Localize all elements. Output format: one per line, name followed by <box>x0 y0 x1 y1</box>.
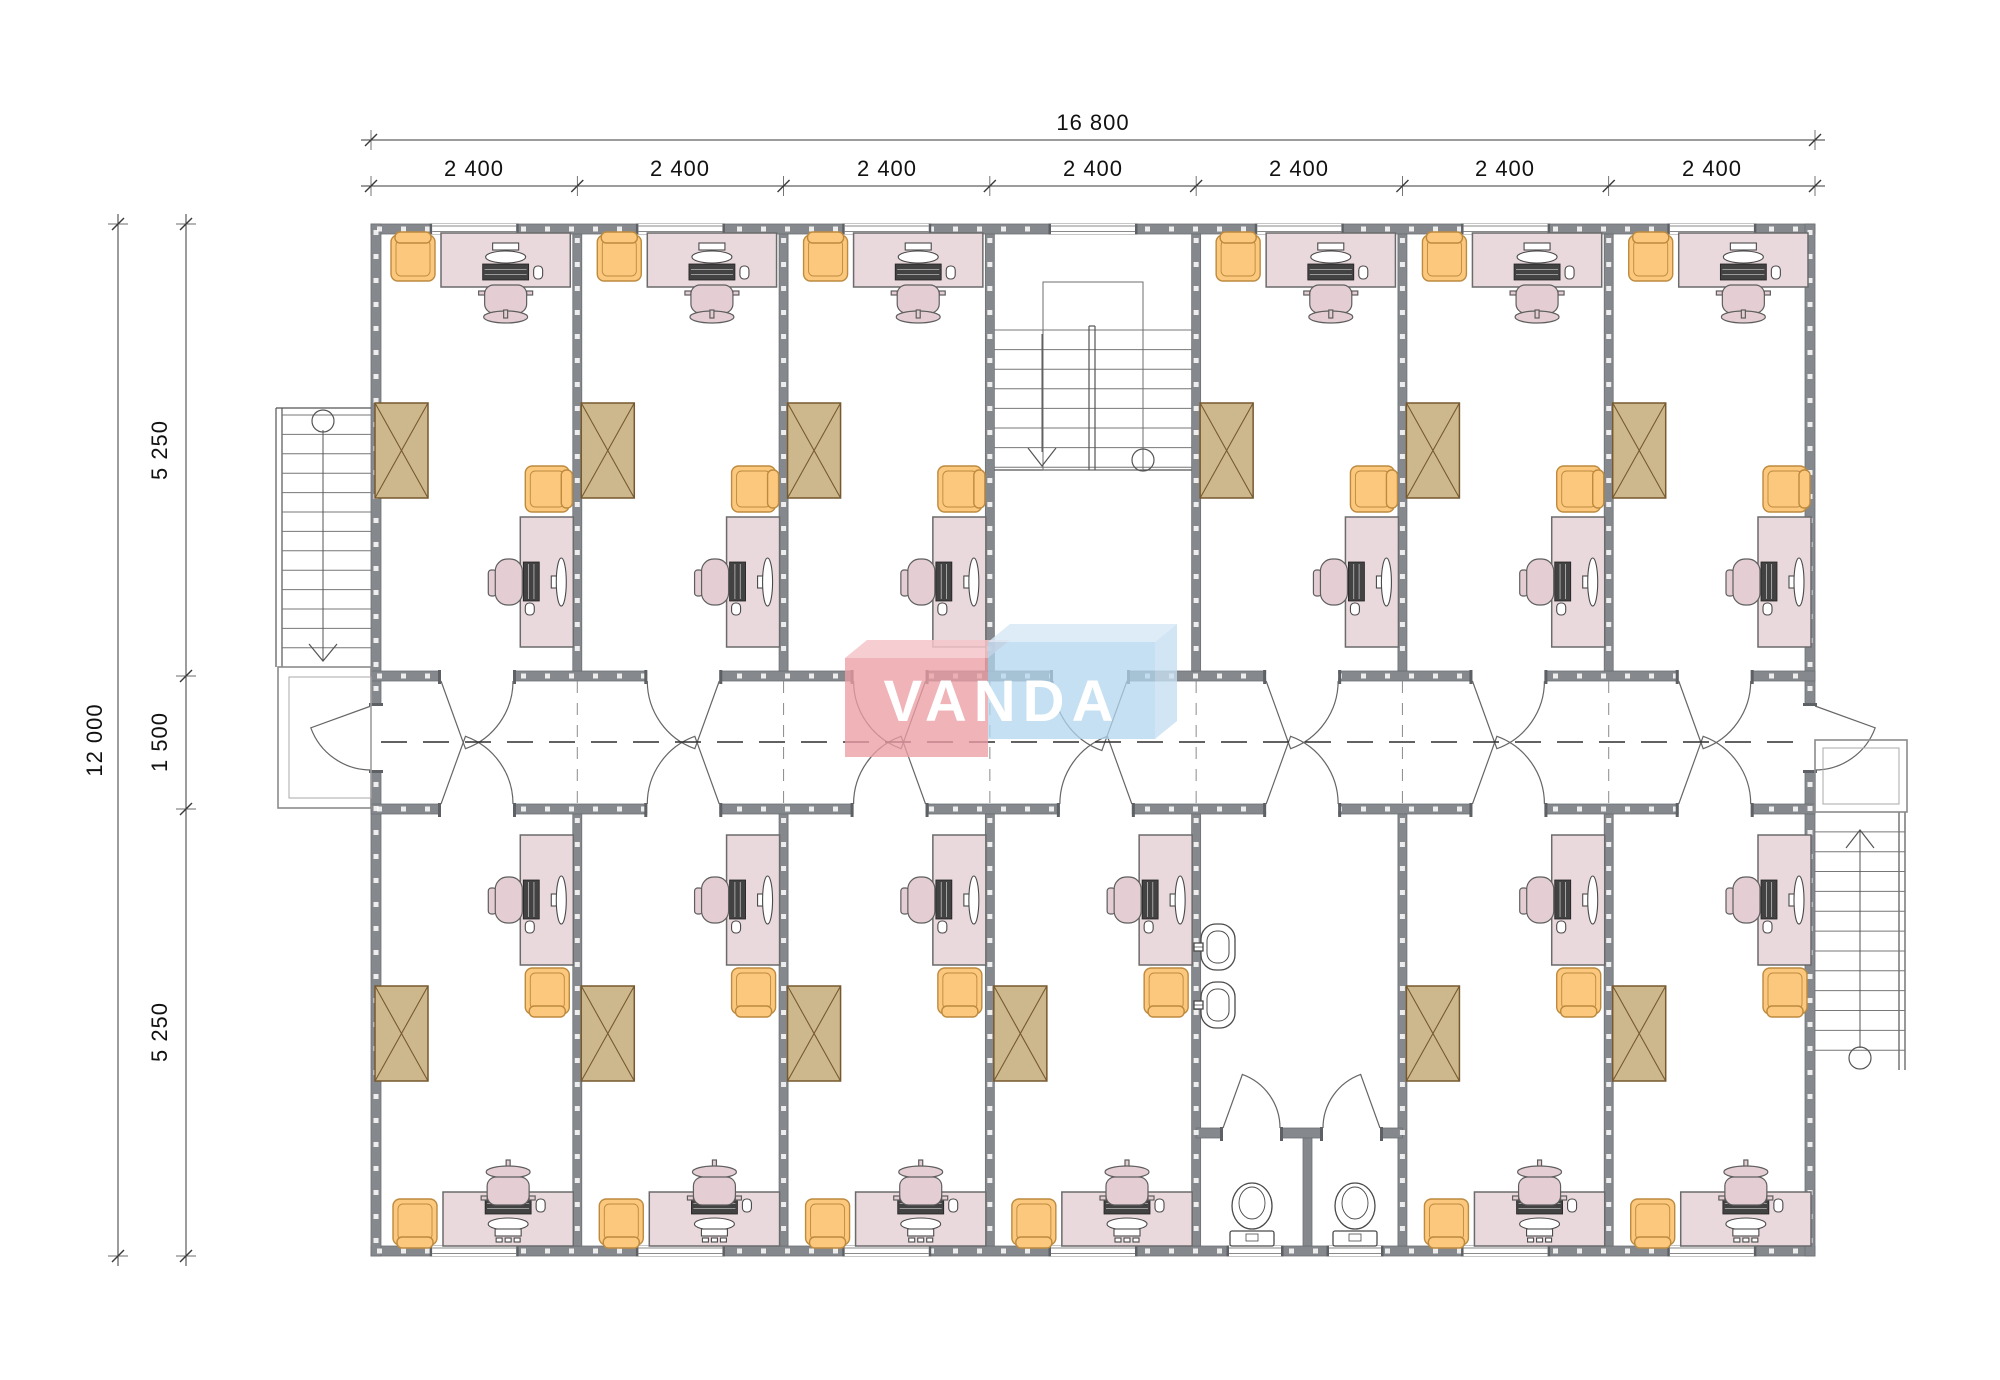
window <box>1049 224 1138 235</box>
armchair <box>1350 466 1397 512</box>
desk-with-computer <box>1679 233 1808 287</box>
armchair <box>1629 232 1673 281</box>
dim-top-segment-2: 2 400 <box>650 156 710 182</box>
desk-with-computer <box>933 517 986 647</box>
armchair <box>806 1199 850 1248</box>
dim-top-segment-4: 2 400 <box>1063 156 1123 182</box>
desk-with-computer <box>854 233 983 287</box>
desk-with-computer <box>1552 835 1605 965</box>
window <box>1327 1246 1384 1257</box>
office-chair <box>891 285 945 323</box>
window <box>842 1246 931 1257</box>
dim-left-lower: 5 250 <box>147 972 173 1092</box>
armchair <box>1012 1199 1056 1248</box>
armchair <box>938 968 982 1017</box>
dim-top-segment-6: 2 400 <box>1475 156 1535 182</box>
armchair <box>1763 968 1807 1017</box>
dim-left-total: 12 000 <box>82 680 108 800</box>
dim-top-segment-5: 2 400 <box>1269 156 1329 182</box>
dim-left-upper: 5 250 <box>147 390 173 510</box>
armchair <box>599 1199 643 1248</box>
stairs-left-exterior <box>276 408 371 667</box>
floor <box>371 224 1815 1256</box>
window <box>1227 1246 1284 1257</box>
desk-with-computer <box>1472 233 1601 287</box>
desk-with-computer <box>1345 517 1398 647</box>
armchair <box>525 466 572 512</box>
desk-with-computer <box>1139 835 1192 965</box>
wardrobe-crossed <box>788 403 841 498</box>
desk-with-computer <box>520 835 573 965</box>
armchair <box>1631 1199 1675 1248</box>
armchair <box>597 232 641 281</box>
office-chair <box>1716 285 1770 323</box>
wardrobe-crossed <box>1406 403 1459 498</box>
desk-with-computer <box>727 517 780 647</box>
wardrobe-crossed <box>375 403 428 498</box>
dim-top-total: 16 800 <box>1056 110 1129 136</box>
desk-with-computer <box>1266 233 1395 287</box>
wardrobe-crossed <box>581 986 634 1081</box>
armchair <box>525 968 569 1017</box>
desk-with-computer <box>441 233 570 287</box>
balcony-left <box>278 667 371 808</box>
armchair <box>732 968 776 1017</box>
armchair <box>391 232 435 281</box>
wardrobe-crossed <box>1613 986 1666 1081</box>
armchair <box>1557 466 1604 512</box>
wardrobe-crossed <box>1200 403 1253 498</box>
desk-with-computer <box>1552 517 1605 647</box>
armchair <box>1424 1199 1468 1248</box>
dim-top-segment-7: 2 400 <box>1682 156 1742 182</box>
desk-with-computer <box>933 835 986 965</box>
desk-with-computer <box>1758 835 1811 965</box>
office-chair <box>1510 285 1564 323</box>
wardrobe-crossed <box>788 986 841 1081</box>
wardrobe-crossed <box>375 986 428 1081</box>
desk-with-computer <box>1758 517 1811 647</box>
office-chair <box>479 285 533 323</box>
window <box>1667 1246 1756 1257</box>
office-chair <box>685 285 739 323</box>
armchair <box>1557 968 1601 1017</box>
armchair <box>1144 968 1188 1017</box>
desk-with-computer <box>520 517 573 647</box>
armchair <box>804 232 848 281</box>
wardrobe-crossed <box>1613 403 1666 498</box>
toilet <box>1333 1183 1377 1246</box>
exit-door-right <box>1803 703 1875 773</box>
armchair <box>938 466 985 512</box>
stairs-right-exterior <box>1815 812 1905 1070</box>
desk-with-computer <box>647 233 776 287</box>
floorplan-canvas: 16 800 2 400 2 400 2 400 2 400 2 400 2 4… <box>0 0 2000 1380</box>
toilet <box>1230 1183 1274 1246</box>
desk-with-computer <box>727 835 780 965</box>
wardrobe-crossed <box>581 403 634 498</box>
armchair <box>1216 232 1260 281</box>
dim-corridor-width: 1 500 <box>147 682 173 802</box>
armchair <box>393 1199 437 1248</box>
logo-text: VANDA <box>852 668 1152 735</box>
dim-top-segment-3: 2 400 <box>857 156 917 182</box>
armchair <box>1422 232 1466 281</box>
dim-top-segment-1: 2 400 <box>444 156 504 182</box>
window <box>430 1246 519 1257</box>
window <box>1461 1246 1550 1257</box>
armchair <box>732 466 779 512</box>
wardrobe-crossed <box>994 986 1047 1081</box>
window <box>1049 1246 1138 1257</box>
office-chair <box>1304 285 1358 323</box>
exit-door-left <box>311 703 383 773</box>
wardrobe-crossed <box>1406 986 1459 1081</box>
armchair <box>1763 466 1810 512</box>
window <box>636 1246 725 1257</box>
